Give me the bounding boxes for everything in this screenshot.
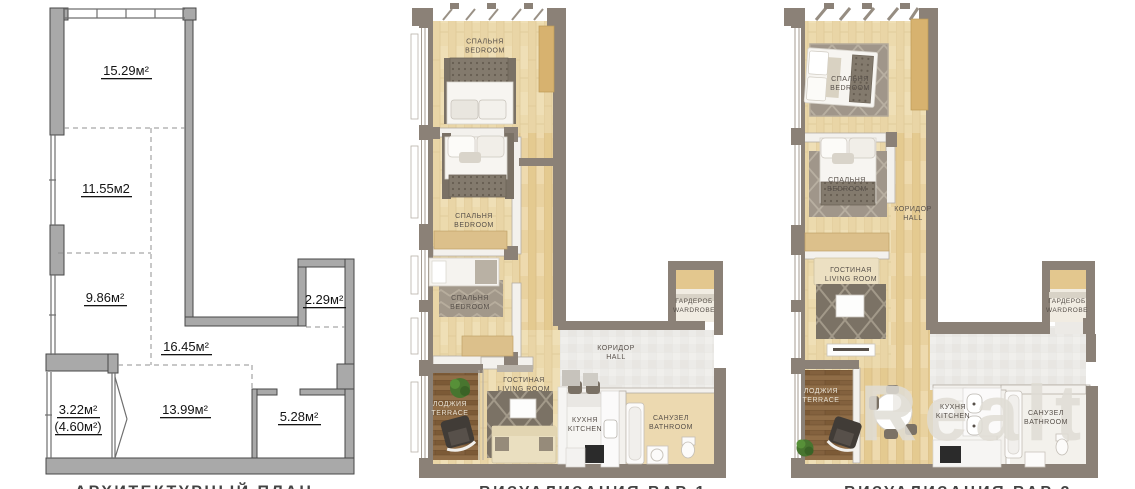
- svg-text:СПАЛЬНЯ: СПАЛЬНЯ: [828, 177, 866, 184]
- svg-text:КУХНЯ: КУХНЯ: [940, 404, 966, 411]
- svg-text:КОРИДОР: КОРИДОР: [597, 345, 635, 352]
- svg-text:BEDROOM: BEDROOM: [465, 48, 505, 55]
- svg-text:WARDROBE: WARDROBE: [1046, 307, 1088, 314]
- svg-text:11.55м2: 11.55м2: [82, 181, 130, 196]
- svg-text:2.29м²: 2.29м²: [305, 292, 344, 307]
- svg-text:(4.60м²): (4.60м²): [54, 419, 101, 434]
- svg-text:ЛОДЖИЯ: ЛОДЖИЯ: [804, 388, 838, 395]
- svg-text:СПАЛЬНЯ: СПАЛЬНЯ: [455, 213, 493, 220]
- svg-text:BATHROOM: BATHROOM: [1024, 419, 1068, 426]
- svg-text:WARDROBE: WARDROBE: [673, 307, 715, 314]
- svg-text:СПАЛЬНЯ: СПАЛЬНЯ: [466, 39, 504, 46]
- svg-text:ВИЗУАЛИЗАЦИЯ ВАР 1: ВИЗУАЛИЗАЦИЯ ВАР 1: [479, 484, 707, 489]
- svg-text:СПАЛЬНЯ: СПАЛЬНЯ: [451, 295, 489, 302]
- svg-text:HALL: HALL: [606, 354, 626, 361]
- svg-text:ЛОДЖИЯ: ЛОДЖИЯ: [433, 401, 467, 408]
- svg-text:САНУЗЕЛ: САНУЗЕЛ: [653, 415, 689, 422]
- svg-text:КУХНЯ: КУХНЯ: [572, 417, 598, 424]
- svg-text:16.45м²: 16.45м²: [163, 339, 209, 354]
- svg-text:3.22м²: 3.22м²: [59, 402, 98, 417]
- svg-text:5.28м²: 5.28м²: [280, 409, 319, 424]
- svg-text:9.86м²: 9.86м²: [86, 290, 125, 305]
- svg-text:СПАЛЬНЯ: СПАЛЬНЯ: [831, 76, 869, 83]
- svg-text:ГОСТИНАЯ: ГОСТИНАЯ: [503, 377, 545, 384]
- svg-text:САНУЗЕЛ: САНУЗЕЛ: [1028, 410, 1064, 417]
- svg-text:ГАРДЕРОБ: ГАРДЕРОБ: [1048, 298, 1086, 305]
- svg-text:BEDROOM: BEDROOM: [830, 85, 870, 92]
- svg-text:KITCHEN: KITCHEN: [568, 426, 602, 433]
- svg-text:BATHROOM: BATHROOM: [649, 424, 693, 431]
- svg-text:15.29м²: 15.29м²: [103, 63, 149, 78]
- svg-text:LIVING ROOM: LIVING ROOM: [825, 276, 877, 283]
- svg-text:ВИЗУАЛИЗАЦИЯ ВАР 2: ВИЗУАЛИЗАЦИЯ ВАР 2: [844, 484, 1072, 489]
- svg-text:KITCHEN: KITCHEN: [936, 413, 970, 420]
- svg-text:BEDROOM: BEDROOM: [827, 186, 867, 193]
- svg-text:АРХИТЕКТУРНЫЙ ПЛАН: АРХИТЕКТУРНЫЙ ПЛАН: [75, 482, 314, 489]
- svg-text:ГАРДЕРОБ: ГАРДЕРОБ: [675, 298, 713, 305]
- svg-text:ГОСТИНАЯ: ГОСТИНАЯ: [830, 267, 872, 274]
- svg-text:BEDROOM: BEDROOM: [450, 304, 490, 311]
- svg-text:LIVING ROOM: LIVING ROOM: [498, 386, 550, 393]
- svg-text:TERRACE: TERRACE: [432, 410, 469, 417]
- svg-text:TERRACE: TERRACE: [803, 397, 840, 404]
- svg-text:13.99м²: 13.99м²: [162, 402, 208, 417]
- svg-text:HALL: HALL: [903, 215, 923, 222]
- svg-text:КОРИДОР: КОРИДОР: [894, 206, 932, 213]
- svg-text:BEDROOM: BEDROOM: [454, 222, 494, 229]
